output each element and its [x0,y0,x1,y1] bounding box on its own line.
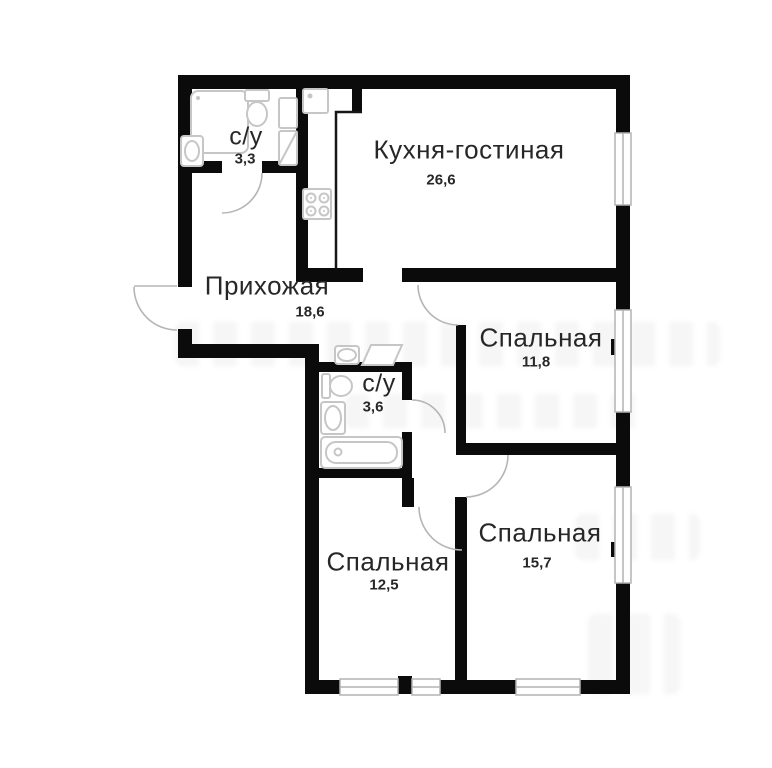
door [466,455,508,497]
room-label-bedroom-right: Спальная [480,323,603,354]
sink-icon [321,402,345,434]
window [340,679,398,695]
toilet-icon [322,374,352,398]
room-label-bathroom-top: с/у [229,123,262,152]
windows [340,133,631,695]
window [615,487,631,583]
room-area-hallway: 18,6 [295,304,324,321]
window [615,310,631,412]
sink-icon [181,136,203,166]
wall [456,325,466,448]
washing-machine-icon [279,98,297,165]
toilet-icon [245,90,269,126]
kitchen-counter-line [336,112,362,269]
room-area-bedroom-right: 11,8 [522,354,550,371]
door [412,400,445,433]
room-area-bathroom-top: 3,3 [235,151,256,168]
room-label-bedroom-bottom-right: Спальная [479,518,602,549]
vanity-sink-icon [335,346,359,364]
wall [402,362,412,400]
wall [440,680,516,694]
wall [305,344,319,694]
wall [178,75,630,89]
wall [402,268,630,282]
wall [455,497,467,680]
wall [398,676,412,694]
room-label-bathroom-mid: с/у [362,370,395,399]
wall [402,478,414,507]
room-area-kitchen-living: 26,6 [426,172,455,189]
walls [178,75,630,694]
room-label-bedroom-bottom-left: Спальная [327,547,450,578]
wall [178,344,319,358]
room-area-bedroom-bottom-right: 15,7 [522,555,551,572]
entrance-door [134,286,177,330]
window [412,679,440,695]
wall [305,680,340,694]
wall [456,443,616,455]
bathtub-icon [321,437,402,468]
room-area-bedroom-bottom-left: 12,5 [369,577,398,594]
wall [178,75,192,287]
window [615,133,631,205]
kitchen-sink-icon [303,89,328,113]
wall [305,468,412,478]
door [418,285,458,325]
room-label-kitchen-living: Кухня-гостиная [374,135,565,166]
floor-plan: с/у 3,3 Кухня-гостиная 26,6 Прихожая 18,… [0,0,772,768]
window [516,679,580,695]
wall [616,412,630,487]
wall [616,583,630,694]
stove-icon [303,189,331,219]
door [222,173,262,213]
room-label-hallway: Прихожая [205,271,329,302]
room-area-bathroom-mid: 3,6 [363,399,384,416]
wall [616,75,630,133]
wall [352,89,362,113]
wall [616,205,630,310]
